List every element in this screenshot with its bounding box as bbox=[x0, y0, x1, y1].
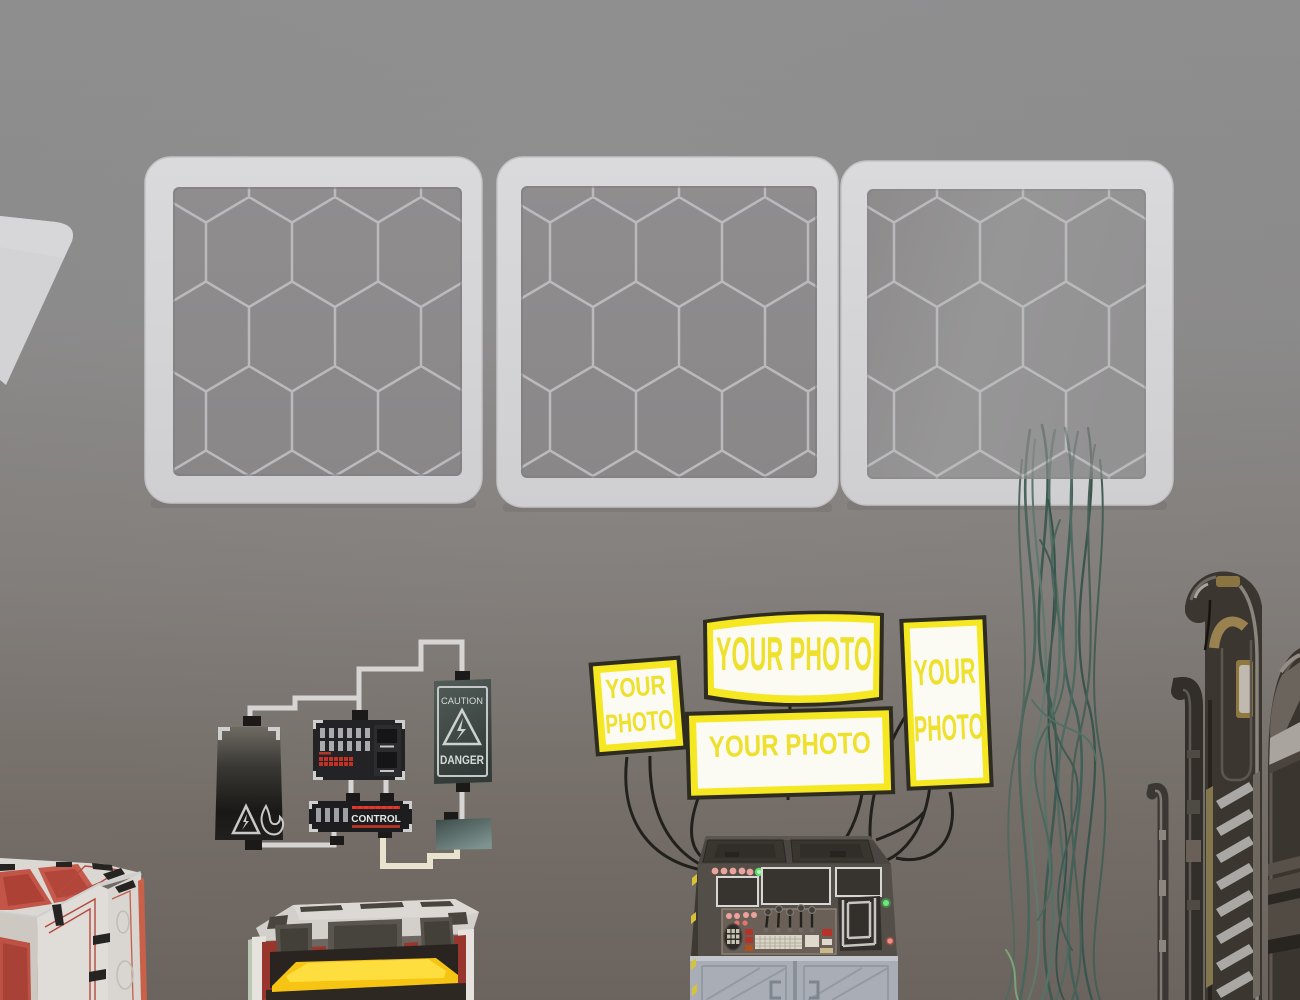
svg-text:YOUR: YOUR bbox=[605, 670, 667, 705]
svg-text:CAUTION: CAUTION bbox=[441, 696, 483, 707]
svg-text:PHOTO: PHOTO bbox=[604, 704, 674, 739]
svg-text:DANGER: DANGER bbox=[440, 755, 485, 767]
svg-text:CONTROL: CONTROL bbox=[351, 814, 400, 825]
svg-text:YOUR PHOTO: YOUR PHOTO bbox=[716, 627, 872, 680]
svg-text:YOUR PHOTO: YOUR PHOTO bbox=[708, 727, 871, 765]
svg-text:YOUR: YOUR bbox=[913, 650, 977, 694]
svg-text:PHOTO: PHOTO bbox=[913, 705, 985, 749]
